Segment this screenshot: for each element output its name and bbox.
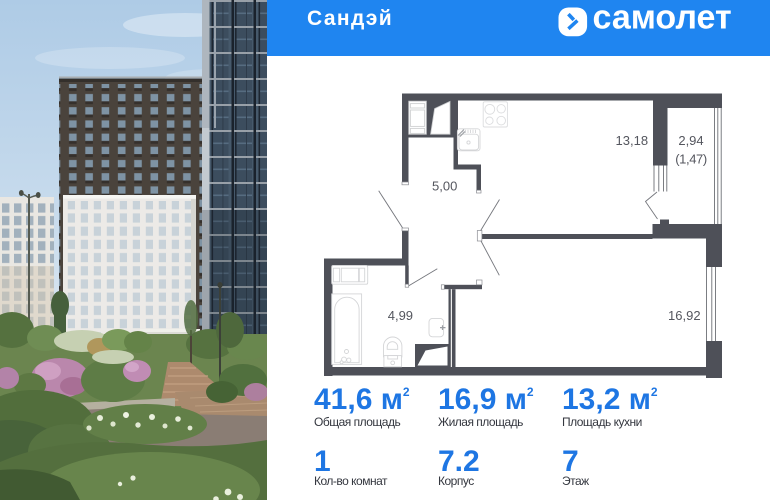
svg-text:(1,47): (1,47) — [675, 152, 707, 167]
svg-text:16,92: 16,92 — [668, 308, 701, 323]
svg-text:13,18: 13,18 — [616, 133, 649, 148]
svg-text:5,00: 5,00 — [432, 178, 457, 193]
svg-text:2,94: 2,94 — [678, 133, 703, 148]
svg-text:4,99: 4,99 — [388, 308, 413, 323]
svg-text:самолет: самолет — [593, 6, 732, 37]
